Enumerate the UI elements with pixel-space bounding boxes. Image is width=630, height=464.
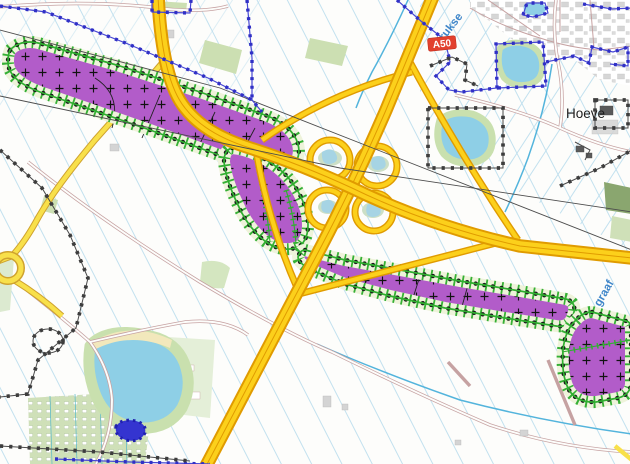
- map-canvas[interactable]: Krukse Hoeve graaf A50: [0, 0, 630, 464]
- shield-text: A50: [432, 38, 452, 51]
- lake-southwest: [89, 330, 188, 428]
- map-viewport[interactable]: Krukse Hoeve graaf A50: [0, 0, 630, 464]
- label-place-hoeve: Hoeve: [566, 106, 605, 121]
- road-shield-a50: A50: [427, 36, 456, 52]
- planning-zone-far-se-parcel[interactable]: [562, 312, 630, 402]
- lake-north: [499, 43, 543, 85]
